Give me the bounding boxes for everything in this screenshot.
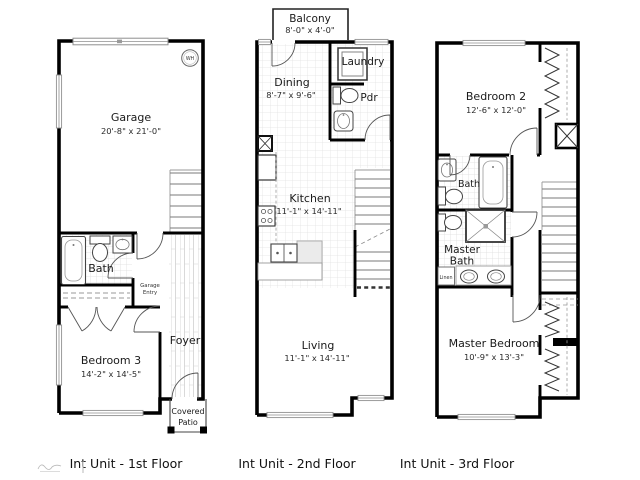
caption-second-floor: Int Unit - 2nd Floor [238, 456, 356, 471]
bath1-label: Bath [88, 262, 114, 275]
stairs-first-floor [170, 170, 203, 233]
living-dims: 11'-1" x 14'-11" [284, 353, 350, 363]
master-bath-label-2: Bath [450, 256, 474, 268]
bedroom2-label: Bedroom 2 [466, 90, 526, 103]
plan-captions: Int Unit - 1st Floor Int Unit - 2nd Floo… [70, 456, 515, 471]
bathtub-icon [62, 237, 86, 285]
garage-entry-label-2: Entry [143, 290, 158, 296]
bedroom3-door [134, 306, 160, 332]
bath3-label: Bath [458, 179, 480, 190]
closet-rod-zigzag [545, 48, 559, 118]
living-right-window [358, 395, 384, 400]
balcony-label: Balcony [289, 13, 331, 25]
bath3-sink-icon [438, 159, 456, 181]
master-closets [542, 297, 578, 395]
covered-patio-label-1: Covered [171, 407, 204, 416]
floor-plans-svg: WH [0, 0, 640, 480]
kitchen-dims: 11'-1" x 14'-11" [276, 206, 342, 216]
living-bottom-window [267, 412, 333, 417]
garage-side-window [56, 75, 61, 128]
bedroom3-closet-double-door [68, 307, 125, 331]
powder-toilet-icon [333, 87, 358, 104]
closet2-rod-zigzag [545, 349, 559, 391]
linen-label: Linen [439, 275, 452, 281]
garage-entry-label-1: Garage [140, 283, 160, 289]
master-toilet-icon [438, 214, 462, 231]
powder-label: Pdr [360, 92, 378, 104]
garage-entry-door [137, 233, 163, 259]
covered-patio-label-2: Patio [178, 418, 198, 427]
vanity-sink-left-icon [461, 270, 478, 283]
powder-sink-icon [334, 111, 353, 131]
living-label: Living [302, 339, 335, 352]
bedroom3-dims: 14'-2" x 14'-5" [81, 369, 141, 379]
kitchen-chase-icon [258, 136, 272, 151]
water-heater-icon: WH [182, 50, 199, 67]
second-floor-plan: Balcony 8'-0" x 4'-0" [257, 9, 392, 418]
top-left-window [259, 39, 271, 44]
bedroom3-label: Bedroom 3 [81, 354, 141, 367]
garage-door [73, 38, 168, 45]
refrigerator-icon [258, 155, 276, 180]
stairwell-floor-mask [356, 168, 390, 290]
laundry-label: Laundry [342, 56, 385, 68]
caption-third-floor: Int Unit - 3rd Floor [400, 456, 515, 471]
closet-shelf-dashes [63, 293, 130, 298]
water-heater-label: WH [186, 56, 195, 62]
foyer-label: Foyer [170, 334, 201, 347]
master-bedroom-dims: 10'-9" x 13'-3" [464, 352, 524, 362]
sink-icon [113, 236, 132, 253]
master-bath-label-1: Master [444, 244, 481, 256]
dining-label: Dining [274, 76, 310, 89]
bath3-tub-icon [479, 157, 507, 208]
master-bedroom-label: Master Bedroom [449, 337, 540, 350]
double-vanity [456, 266, 511, 285]
bedroom3-side-window [56, 325, 61, 385]
balcony-dims: 8'-0" x 4'-0" [285, 25, 335, 35]
master-bedroom-door [513, 295, 540, 322]
bedroom2-top-window [463, 40, 525, 45]
first-floor-plan: WH [56, 38, 207, 433]
range-icon [258, 206, 275, 226]
kitchen-sink-icon [271, 244, 297, 262]
garage-label: Garage [111, 111, 152, 124]
kitchen-label: Kitchen [289, 192, 330, 205]
stairs-third-floor [542, 182, 578, 280]
garage-dims: 20'-8" x 21'-0" [101, 126, 161, 136]
top-right-window [355, 39, 388, 44]
bedroom2-door [510, 128, 537, 155]
floor-plan-sheet: WH [0, 0, 640, 480]
master-bedroom-window [458, 414, 515, 419]
third-floor-plan: Bedroom 2 12'-6" x 12'-0" Bath Master Ba… [437, 40, 578, 419]
master-bath-door [512, 212, 537, 237]
closet-divider-wall [553, 338, 578, 346]
bedroom2-closet [545, 48, 567, 120]
bedroom2-dims: 12'-6" x 12'-0" [466, 105, 526, 115]
shower-icon [466, 210, 505, 242]
covered-patio [168, 399, 208, 434]
chase-x-box [556, 124, 578, 148]
caption-first-floor: Int Unit - 1st Floor [70, 456, 184, 471]
closet1-rod-zigzag [545, 302, 559, 337]
vanity-sink-right-icon [488, 270, 505, 283]
bedroom3-bottom-window [83, 410, 143, 415]
dining-dims: 8'-7" x 9'-6" [266, 90, 316, 100]
